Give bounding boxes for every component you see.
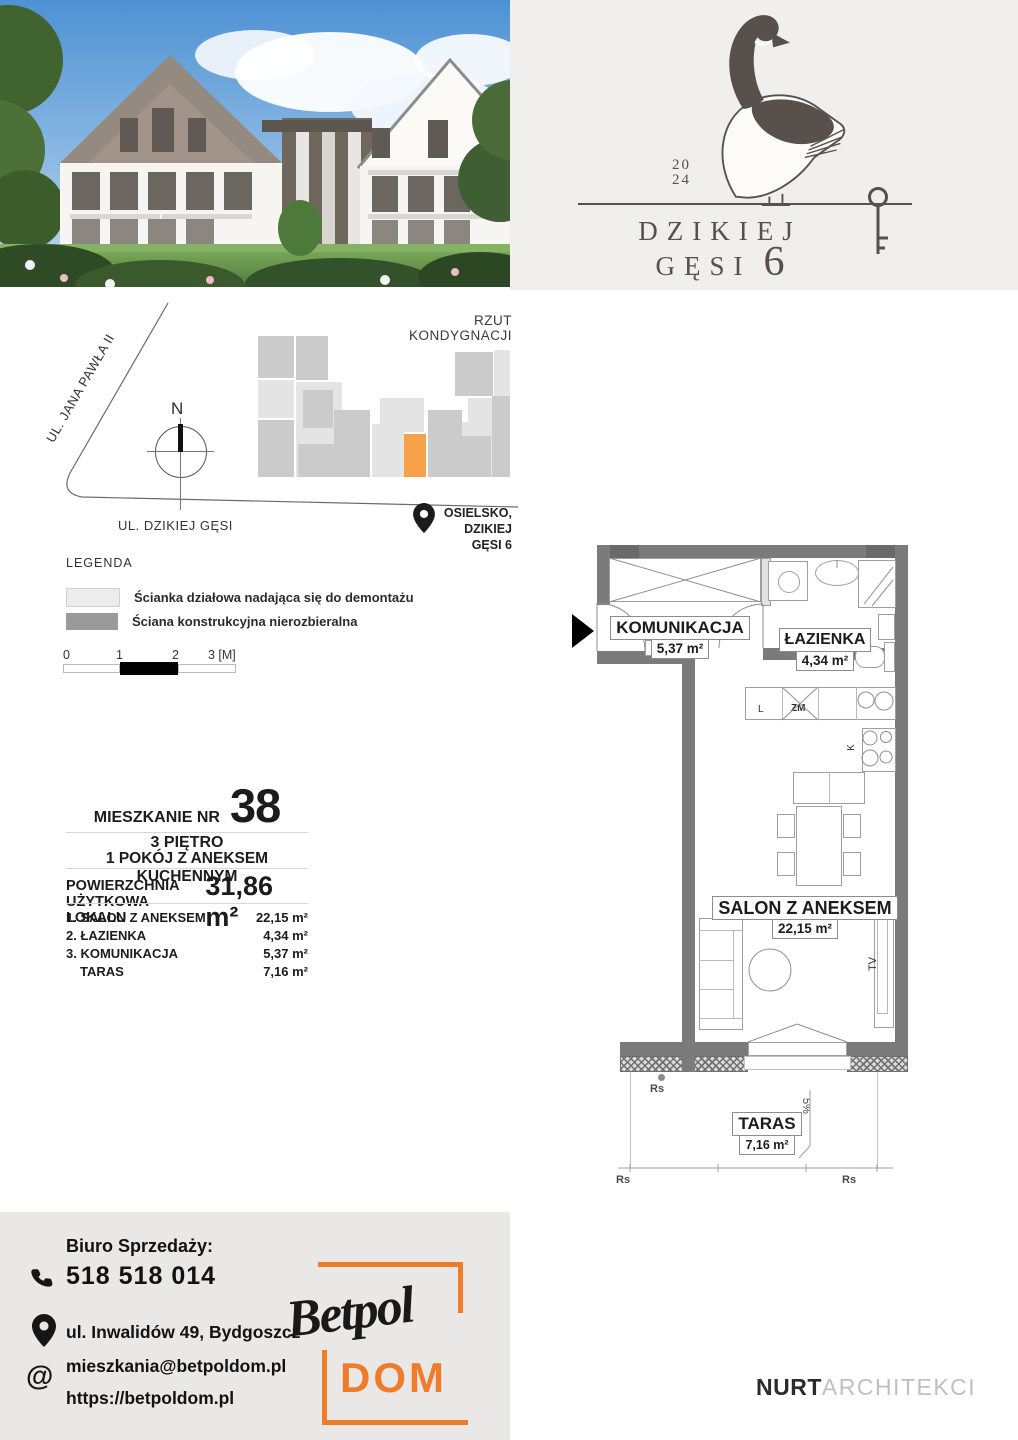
- building-render-illustration: [0, 0, 510, 287]
- legend-item-structural: Ściana konstrukcyjna nierozbieralna: [66, 613, 357, 630]
- logo-year-bottom: 24: [672, 173, 691, 188]
- site-plan-block: [492, 396, 510, 477]
- contact-email[interactable]: mieszkania@betpoldom.pl: [66, 1356, 286, 1377]
- project-logo-panel: 20 24 DZIKIEJ GĘSI 6: [510, 0, 1018, 290]
- architect-light: ARCHITEKCI: [822, 1374, 976, 1401]
- room-row-name: 3. KOMUNIKACJA: [66, 946, 178, 961]
- betpol-script: Betpol: [283, 1265, 499, 1349]
- room-row-area: 7,16 m²: [263, 964, 308, 979]
- room-row-area: 5,37 m²: [263, 946, 308, 961]
- compass-needle: [178, 424, 183, 452]
- unit-number: 38: [230, 778, 280, 833]
- location-line2: DZIKIEJ GĘSI 6: [438, 521, 512, 553]
- flyer-page: 20 24 DZIKIEJ GĘSI 6 RZUT KONDYGNACJI UL…: [0, 0, 1018, 1440]
- scale-tick-0: 0: [63, 648, 70, 662]
- at-icon: @: [26, 1360, 53, 1392]
- compass-north-label: N: [171, 399, 183, 419]
- area-label-line1: POWIERZCHNIA: [66, 878, 205, 894]
- site-plan-block: [334, 410, 370, 477]
- logo-title-line2: GĘSI: [656, 250, 752, 282]
- site-plan-block: [455, 436, 491, 477]
- architect-logo: NURT ARCHITEKCI: [756, 1374, 976, 1401]
- legend-swatch-partition: [66, 588, 120, 607]
- logo-number: 6: [764, 246, 785, 278]
- room-label-taras: TARAS 7,16 m²: [728, 1112, 806, 1155]
- phone-icon: [28, 1266, 54, 1292]
- contact-address: ul. Inwalidów 49, Bydgoszcz: [66, 1322, 300, 1343]
- logo-year-top: 20: [672, 158, 691, 173]
- logo-rule: [578, 203, 912, 205]
- scale-tick-3: 3 [M]: [208, 648, 236, 662]
- legend-label-structural: Ściana konstrukcyjna nierozbieralna: [132, 614, 357, 629]
- site-plan-block: [258, 380, 294, 418]
- building-photo: [0, 0, 510, 287]
- site-plan-block: [494, 350, 510, 396]
- street-label-bottom: UL. DZIKIEJ GĘSI: [118, 518, 233, 533]
- site-plan-block: [455, 352, 493, 396]
- room-row-area: 4,34 m²: [263, 928, 308, 943]
- scale-tick-2: 2: [172, 648, 179, 662]
- legend-item-partition: Ścianka działowa nadająca się do demonta…: [66, 588, 414, 607]
- site-plan-block: [258, 420, 294, 477]
- betpol-dom: DOM: [332, 1354, 455, 1402]
- site-plan-block: [298, 444, 334, 477]
- unit-number-label: MIESZKANIE NR: [94, 809, 220, 827]
- legend-title: LEGENDA: [66, 556, 133, 570]
- legend-swatch-structural: [66, 613, 118, 630]
- site-plan-block: [303, 390, 333, 428]
- logo-title-line1: DZIKIEJ: [510, 216, 930, 246]
- room-label-komunikacja: KOMUNIKACJA 5,37 m²: [613, 616, 747, 659]
- contact-heading: Biuro Sprzedaży:: [66, 1236, 213, 1257]
- contact-phone[interactable]: 518 518 014: [66, 1262, 216, 1291]
- location-pin-icon: [413, 503, 435, 533]
- room-row-area: 22,15 m²: [256, 910, 308, 925]
- room-row-name: 2. ŁAZIENKA: [66, 928, 146, 943]
- room-row-name: TARAS: [66, 964, 124, 979]
- goose-icon: [700, 10, 850, 206]
- legend-label-partition: Ścianka działowa nadająca się do demonta…: [134, 590, 414, 605]
- site-plan-unit-highlighted: [404, 434, 426, 477]
- pin-icon: [32, 1314, 56, 1347]
- contact-website[interactable]: https://betpoldom.pl: [66, 1388, 234, 1409]
- room-label-salon: SALON Z ANEKSEM 22,15 m²: [731, 896, 879, 939]
- room-label-lazienka: ŁAZIENKA 4,34 m²: [777, 628, 873, 671]
- site-plan-block: [258, 336, 294, 378]
- scale-tick-1: 1: [116, 648, 123, 662]
- site-plan-block: [296, 336, 328, 380]
- site-plan-block: [380, 398, 424, 432]
- room-row-name: 1. SALON Z ANEKSEM: [66, 910, 206, 925]
- location-line1: OSIELSKO,: [438, 505, 512, 521]
- architect-bold: NURT: [756, 1374, 822, 1401]
- contact-card: Biuro Sprzedaży: 518 518 014 ul. Inwalid…: [0, 1212, 510, 1440]
